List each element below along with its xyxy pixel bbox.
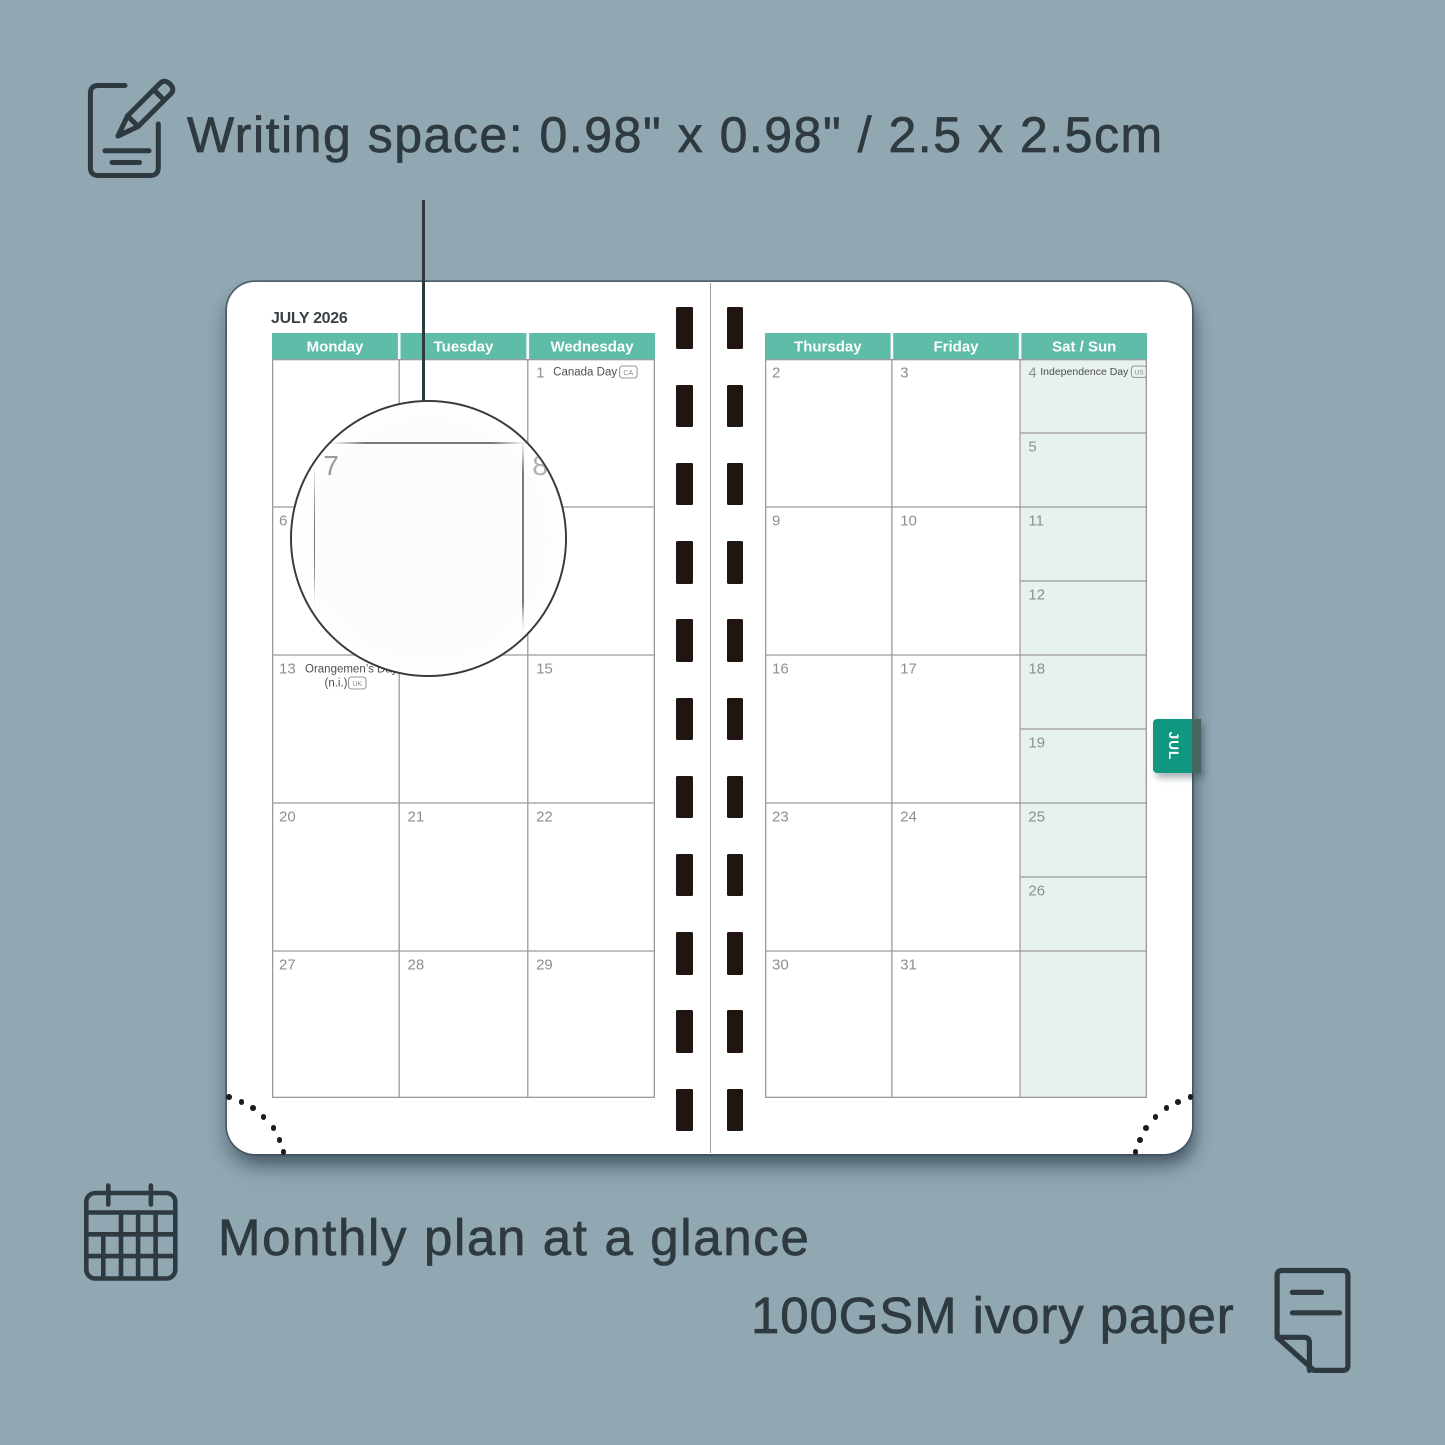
svg-text:4: 4 (1028, 364, 1036, 381)
svg-text:6: 6 (279, 512, 287, 529)
svg-text:Tuesday: Tuesday (434, 338, 494, 355)
svg-text:Friday: Friday (933, 338, 979, 355)
svg-text:18: 18 (1028, 660, 1045, 677)
svg-text:17: 17 (900, 660, 917, 677)
svg-text:29: 29 (536, 956, 553, 973)
svg-text:25: 25 (1028, 808, 1045, 825)
svg-text:(n.i.): (n.i.) (325, 677, 348, 689)
svg-text:24: 24 (900, 808, 917, 825)
svg-text:31: 31 (900, 956, 917, 973)
svg-text:30: 30 (772, 956, 789, 973)
svg-text:27: 27 (279, 956, 296, 973)
svg-text:21: 21 (408, 808, 425, 825)
svg-text:11: 11 (1028, 512, 1044, 529)
svg-text:16: 16 (772, 660, 789, 677)
svg-text:5: 5 (1028, 438, 1036, 455)
svg-text:22: 22 (536, 808, 553, 825)
svg-text:28: 28 (408, 956, 425, 973)
svg-text:19: 19 (1028, 734, 1045, 751)
svg-text:US: US (1135, 369, 1145, 376)
svg-text:Monday: Monday (307, 338, 364, 355)
svg-text:Thursday: Thursday (794, 338, 862, 355)
svg-text:Sat / Sun: Sat / Sun (1052, 338, 1116, 355)
svg-text:10: 10 (900, 512, 917, 529)
svg-text:26: 26 (1028, 882, 1045, 899)
svg-text:Independence Day: Independence Day (1040, 366, 1129, 378)
svg-text:23: 23 (772, 808, 789, 825)
svg-text:20: 20 (279, 808, 296, 825)
svg-text:Canada Day: Canada Day (553, 366, 617, 378)
svg-text:13: 13 (279, 660, 296, 677)
svg-text:15: 15 (536, 660, 553, 677)
svg-text:2: 2 (772, 364, 780, 381)
svg-text:Wednesday: Wednesday (550, 338, 634, 355)
svg-text:3: 3 (900, 364, 908, 381)
svg-text:9: 9 (772, 512, 780, 529)
svg-text:CA: CA (623, 370, 633, 377)
svg-text:UK: UK (352, 681, 362, 688)
svg-text:1: 1 (536, 364, 544, 381)
svg-text:12: 12 (1028, 586, 1045, 603)
